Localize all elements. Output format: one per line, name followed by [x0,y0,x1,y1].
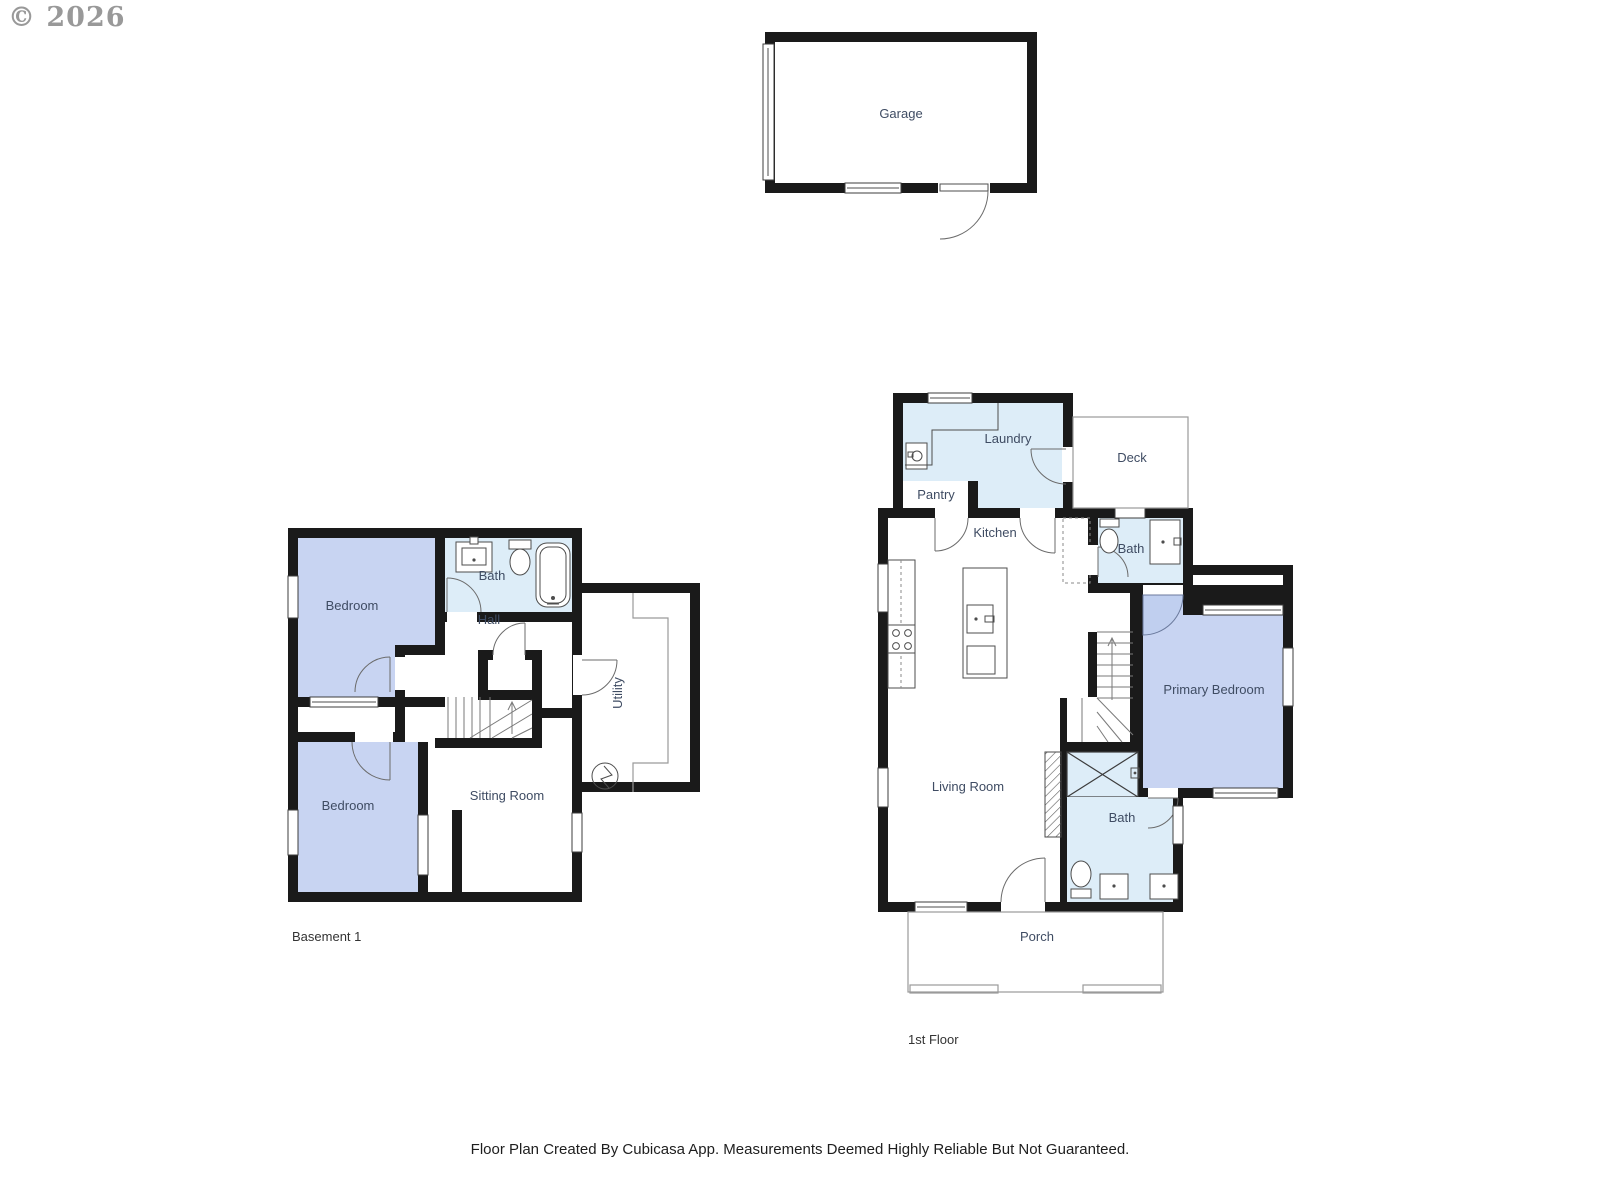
primary-bedroom-label: Primary Bedroom [1163,682,1264,697]
sink-icon [1150,874,1178,899]
window [878,768,888,807]
living-room-label: Living Room [932,779,1004,794]
fireplace-hatch [1045,752,1061,837]
kitchen-label: Kitchen [973,525,1016,540]
window [928,393,972,403]
toilet-icon [509,540,531,575]
sink-icon [456,537,492,572]
deck-label: Deck [1117,450,1147,465]
bath-upper-label: Bath [1118,541,1145,556]
basement-bath-label: Bath [479,568,506,583]
stove-icon [888,625,915,653]
basement-caption: Basement 1 [292,929,361,944]
garage-plan: Garage [763,32,1037,239]
floor-plan-drawing: Garage [0,0,1600,1200]
garage-label: Garage [879,106,922,121]
shower-icon [1067,752,1139,797]
garage-door-icon [763,44,774,180]
room-bedroom-lower [298,742,418,892]
window [418,815,428,875]
window [878,564,888,612]
room-porch [908,912,1163,993]
window [1283,648,1293,706]
bedroom-upper-label: Bedroom [326,598,379,613]
bathtub-icon [536,543,570,607]
utility-label: Utility [610,677,625,709]
porch-label: Porch [1020,929,1054,944]
floor-plan-canvas: © 2026 Garage [0,0,1600,1200]
window [310,697,378,707]
window [845,183,901,193]
window [1173,806,1183,844]
toilet-icon [1100,519,1119,553]
sink-icon [1100,874,1128,899]
door-arc [938,183,990,239]
window [572,813,582,852]
first-floor-plan: Laundry Deck Pantry Kitchen Bath Primary… [878,393,1293,993]
window [1115,508,1145,518]
sitting-room-label: Sitting Room [470,788,544,803]
bedroom-lower-label: Bedroom [322,798,375,813]
pantry-label: Pantry [917,487,955,502]
sink-icon [1150,520,1181,564]
window [1213,788,1278,798]
hall-label: Hall [478,612,501,627]
window [915,902,967,912]
laundry-label: Laundry [985,431,1032,446]
window [288,810,298,855]
disclaimer-footer: Floor Plan Created By Cubicasa App. Meas… [0,1141,1600,1158]
toilet-icon [1071,861,1091,898]
window [288,576,298,618]
first-floor-caption: 1st Floor [908,1032,959,1047]
bath-lower-label: Bath [1109,810,1136,825]
basement-plan: Bedroom Bath Hall Utility Bedroom Sittin… [288,528,700,902]
window [1203,605,1283,615]
